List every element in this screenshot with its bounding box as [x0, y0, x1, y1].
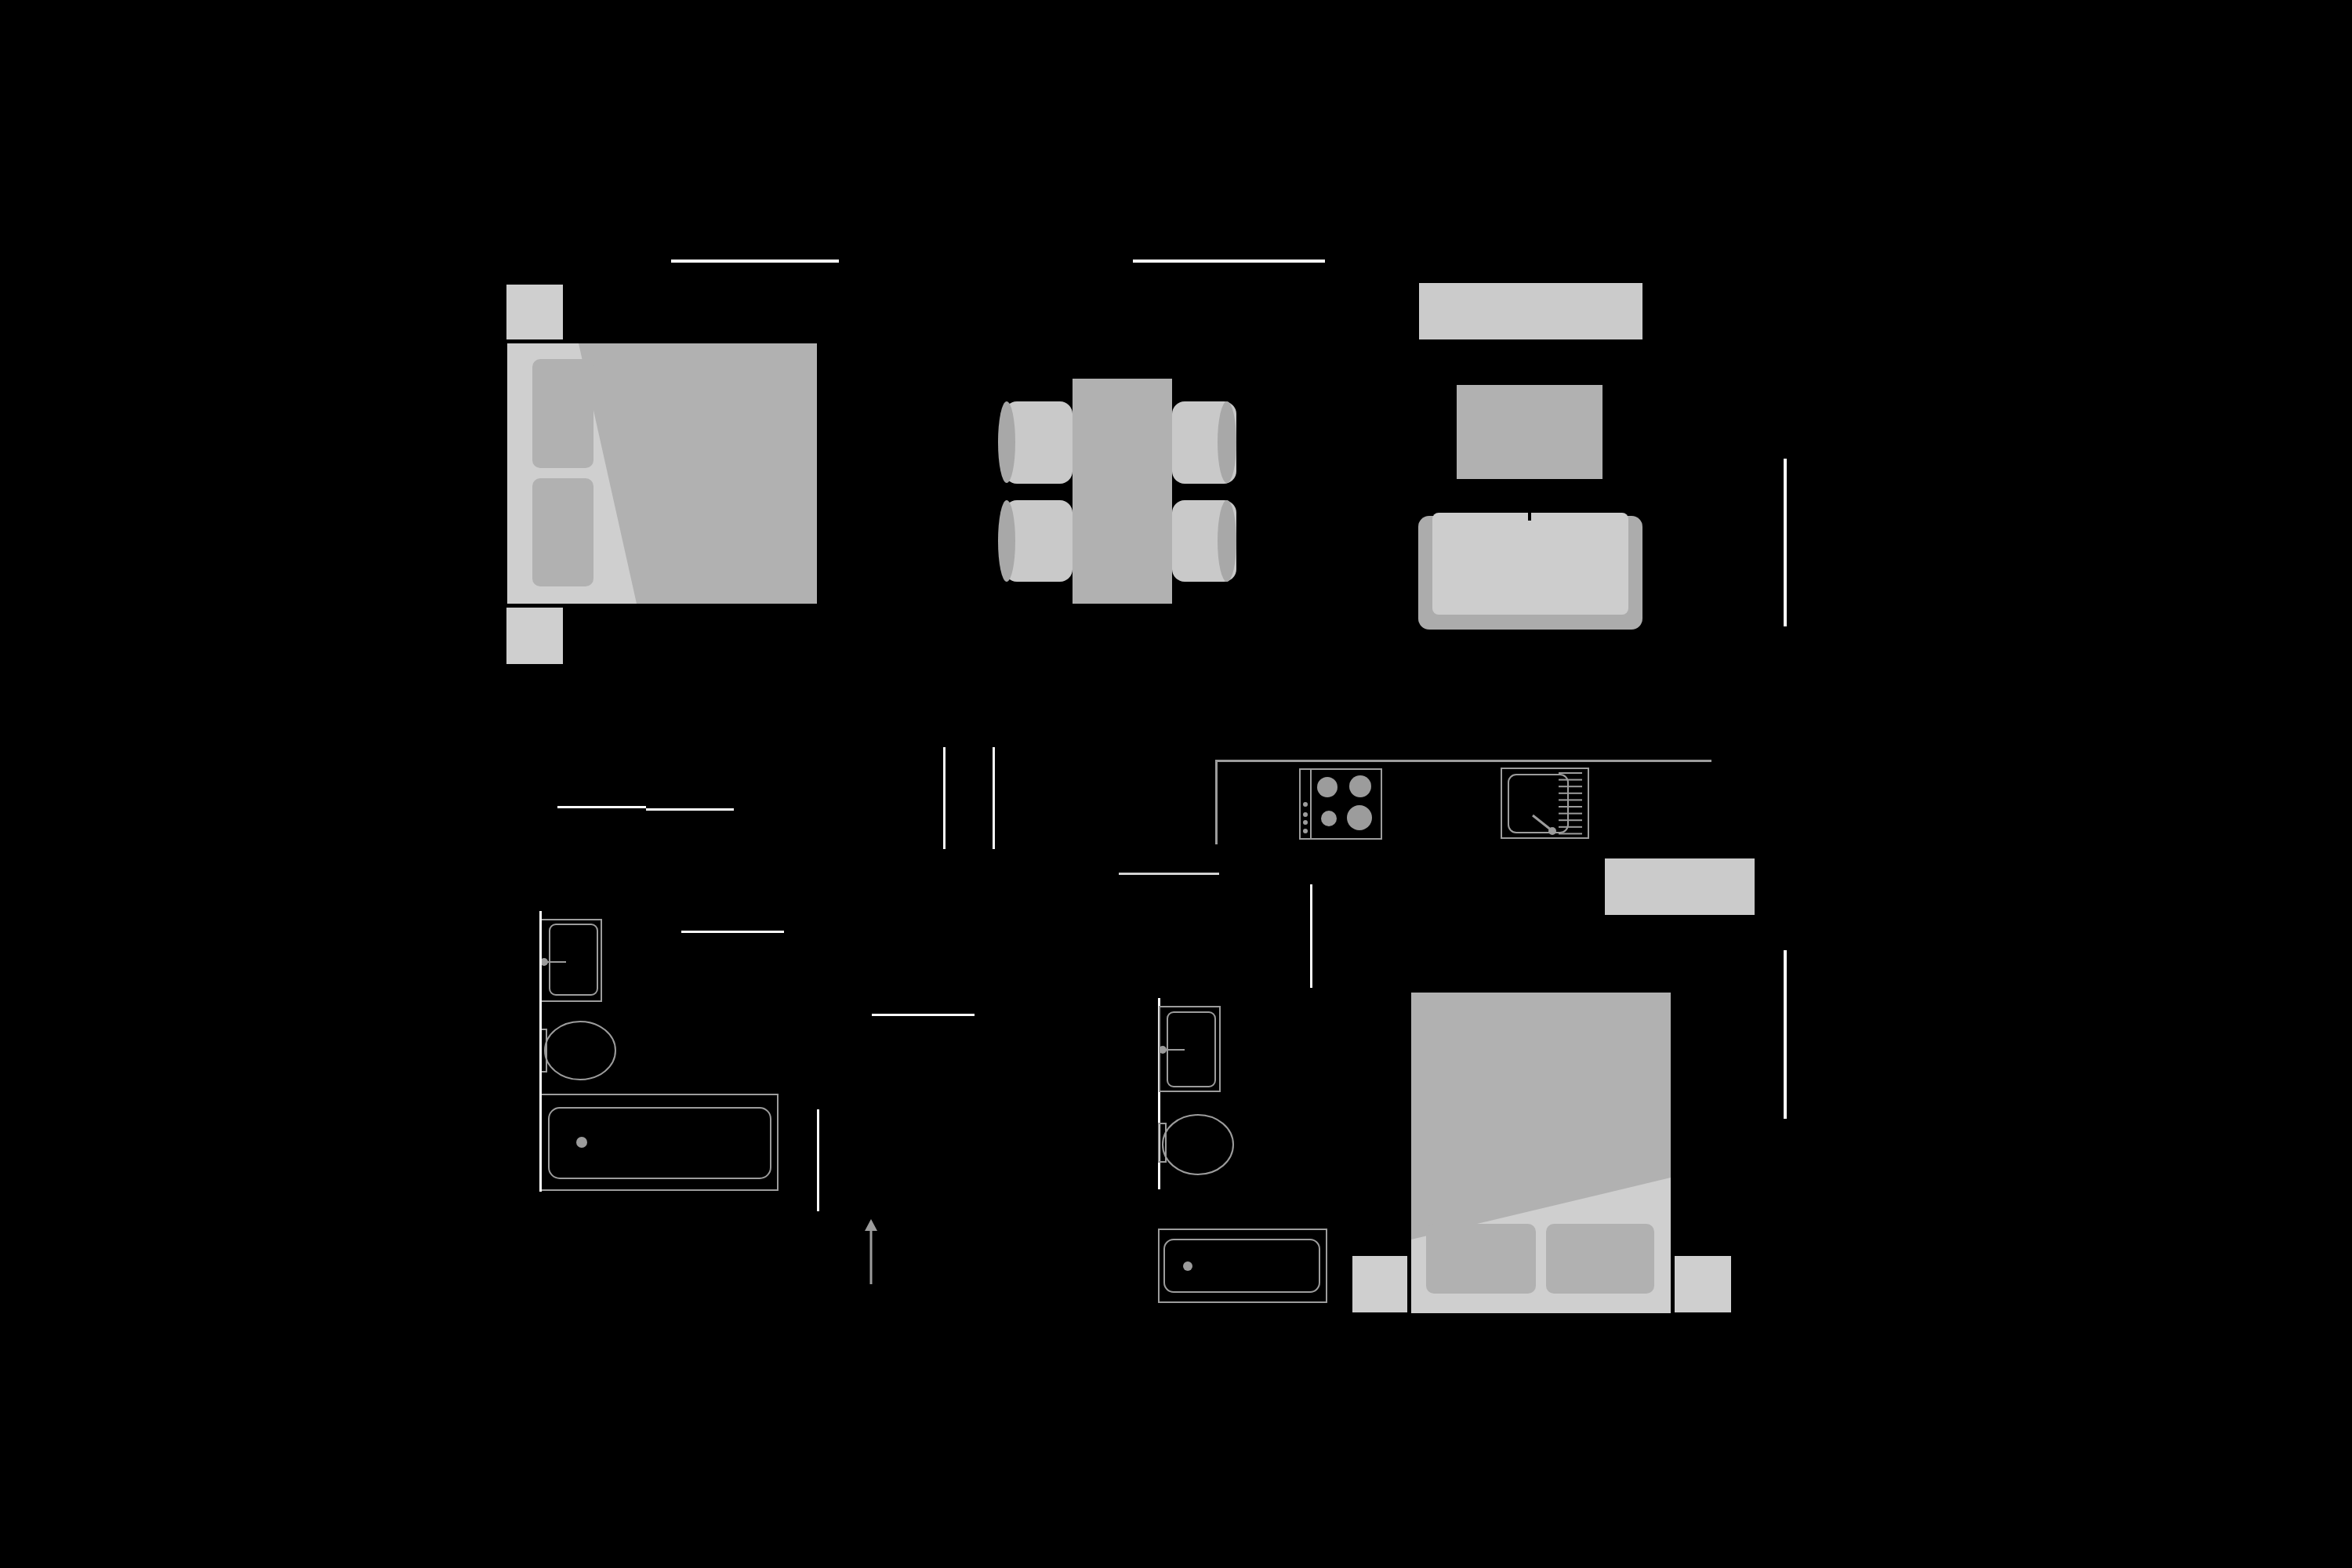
living-sofa-cushions: [1432, 513, 1628, 615]
kitchen-sink-basin: [1508, 775, 1568, 833]
hall-wall-right: [993, 747, 995, 849]
bathroom1-sink-basin: [550, 924, 597, 995]
kitchen-stove-burner-2: [1349, 775, 1371, 797]
bathroom2-bathtub-drain: [1183, 1261, 1192, 1271]
bathroom1-right-wall: [817, 1109, 819, 1211]
living-right-wall-lower: [1784, 950, 1787, 1119]
bathroom1-top-wall-b: [646, 808, 734, 811]
bedroom2-nightstand-right: [1675, 1256, 1731, 1312]
kitchen-wall-left: [1310, 884, 1312, 988]
kitchen-stove-burner-1: [1317, 777, 1338, 797]
entrance-arrow-head: [865, 1219, 877, 1231]
kitchen-sink-faucet-base: [1548, 827, 1556, 835]
bathroom1-toilet-bowl: [545, 1022, 615, 1080]
kitchen-stove-knob-1: [1303, 802, 1308, 807]
kitchen-stove-burner-3: [1321, 811, 1337, 826]
bedroom2-nightstand-left: [1352, 1256, 1407, 1312]
kitchen-stove-knob-2: [1303, 812, 1308, 817]
bathroom1-top-wall-a: [557, 806, 646, 808]
bathroom2-toilet-bowl: [1163, 1115, 1233, 1174]
bedroom1-pillow-2: [532, 478, 593, 586]
bedroom2-pillow-2: [1546, 1224, 1654, 1294]
kitchen-stove-knob-3: [1303, 820, 1308, 825]
kitchen-sink-faucet-arm: [1533, 815, 1552, 830]
dining-chair-bl-backrest: [998, 500, 1015, 582]
dining-top-wall: [1133, 260, 1325, 263]
kitchen-stove-knob-4: [1303, 829, 1308, 833]
dining-chair-tr-backrest: [1218, 401, 1236, 483]
kitchen-cabinet: [1605, 858, 1755, 915]
dining-chair-br-backrest: [1218, 500, 1236, 582]
hall-lower-wall: [872, 1014, 975, 1016]
bedroom1-nightstand-top: [506, 285, 563, 339]
bathroom1-left-wall: [539, 911, 542, 1192]
kitchen-counter-edge-left: [1215, 760, 1218, 844]
kitchen-threshold-line: [1119, 873, 1219, 875]
living-coffee-table: [1457, 385, 1602, 479]
bedroom1-pillow-1: [532, 359, 593, 468]
kitchen-stove-outline: [1300, 769, 1381, 839]
bedroom1-nightstand-bottom: [506, 608, 563, 664]
floorplan-svg: [0, 0, 2352, 1568]
living-sofa-cushion-gap: [1528, 513, 1531, 521]
kitchen-counter-edge-top: [1215, 760, 1711, 762]
kitchen-stove-burner-4: [1347, 805, 1372, 830]
floorplan-stage: [0, 0, 2352, 1568]
bedroom1-top-wall: [671, 260, 839, 263]
bedroom2-pillow-1: [1426, 1224, 1536, 1294]
bathroom1-inner-wall: [681, 931, 784, 933]
living-sideboard: [1419, 283, 1642, 339]
dining-chair-tl-backrest: [998, 401, 1015, 483]
bathroom1-bathtub-drain: [576, 1137, 587, 1148]
dining-table: [1073, 379, 1172, 604]
living-right-wall-upper: [1784, 459, 1787, 626]
hall-wall-left: [943, 747, 946, 849]
bathroom1-bathtub-outline: [540, 1094, 778, 1190]
